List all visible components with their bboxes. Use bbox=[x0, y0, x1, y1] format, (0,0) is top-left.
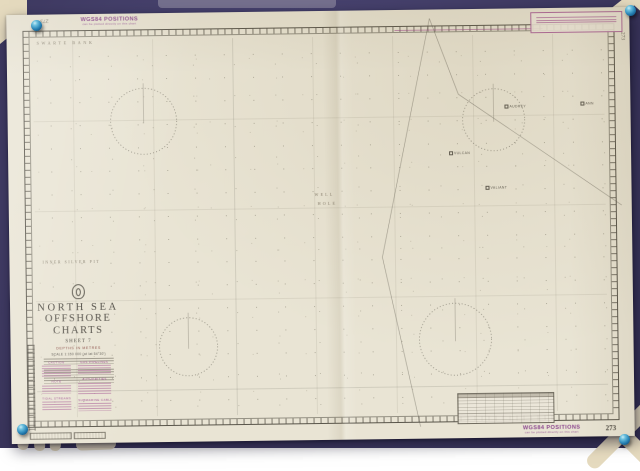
positions-table bbox=[457, 392, 554, 424]
note-heading: GAS PIPELINES bbox=[78, 361, 111, 365]
gas-field-label: ANN bbox=[580, 101, 593, 105]
caution-note-box bbox=[530, 11, 622, 33]
note-body bbox=[78, 403, 111, 411]
gas-field-label: VULCAN bbox=[449, 151, 470, 155]
note-block: GAS PIPELINES bbox=[78, 361, 111, 375]
nautical-chart-paper: WGS84 POSITIONS can be plotted directly … bbox=[6, 7, 635, 444]
note-heading: AUTHORITIES bbox=[78, 378, 111, 382]
chart-title-series: OFFSHORE CHARTS bbox=[30, 313, 126, 338]
note-body bbox=[78, 365, 111, 374]
note-block: SUBMARINE CABLES bbox=[78, 399, 111, 412]
chart-title-region: NORTH SEA bbox=[30, 302, 126, 314]
positions-table-header bbox=[458, 393, 553, 398]
hole-label-line1: WELL bbox=[315, 192, 335, 197]
compass-roses bbox=[110, 83, 528, 379]
depths-note: DEPTHS IN METRES bbox=[31, 346, 127, 351]
push-pin-bottom-left bbox=[17, 424, 28, 435]
bank-label: SWARTE BANK bbox=[37, 40, 95, 46]
note-body bbox=[42, 401, 71, 411]
note-block: TIDAL STREAMS bbox=[42, 397, 71, 412]
note-heading: CAUTION bbox=[42, 361, 71, 365]
photo-scene: WGS84 POSITIONS can be plotted directly … bbox=[0, 0, 640, 448]
pipeline-lines bbox=[379, 16, 624, 427]
note-body bbox=[42, 366, 71, 377]
note-heading: NOTE bbox=[42, 381, 71, 385]
note-heading: TIDAL STREAMS bbox=[42, 397, 71, 401]
gas-field-label: VALIANT bbox=[485, 186, 507, 190]
note-body bbox=[42, 385, 71, 393]
note-block: CAUTION bbox=[42, 361, 71, 377]
chart-number-bottom-right: 273 bbox=[606, 424, 617, 432]
push-pin-top-left bbox=[31, 20, 42, 31]
push-pin-top-right bbox=[625, 5, 636, 16]
note-text-line bbox=[536, 16, 616, 18]
wgs84-stamp-top: WGS84 POSITIONS can be plotted directly … bbox=[64, 16, 154, 26]
pit-label: INNER SILVER PIT bbox=[42, 260, 100, 265]
notes-column-right: GAS PIPELINES AUTHORITIES SUBMARINE CABL… bbox=[78, 361, 112, 416]
chart-sheet-number: SHEET 7 bbox=[30, 339, 126, 345]
compass-north-lines bbox=[143, 79, 496, 350]
chart-number-right-edge: 273 bbox=[619, 32, 625, 40]
note-block: AUTHORITIES bbox=[78, 378, 111, 395]
note-block: NOTE bbox=[42, 381, 71, 394]
admiralty-crest-icon bbox=[71, 284, 84, 299]
scale-note: SCALE 1:150 000 (at lat 54°30') bbox=[31, 351, 127, 356]
gas-field-label: AUDREY bbox=[504, 104, 526, 108]
note-text-line bbox=[536, 22, 616, 24]
print-note-box bbox=[74, 432, 106, 439]
print-note-box bbox=[30, 432, 72, 440]
hole-label-line2: HOLE bbox=[318, 201, 338, 206]
note-heading: SUBMARINE CABLES bbox=[78, 399, 111, 403]
notes-column-left: CAUTION NOTE TIDAL STREAMS bbox=[42, 361, 72, 416]
note-body bbox=[78, 383, 111, 395]
push-pin-bottom-right bbox=[619, 434, 630, 445]
fabric-band-top bbox=[158, 0, 336, 8]
note-text-line bbox=[536, 19, 616, 21]
wgs84-stamp-bottom: WGS84 POSITIONS can be plotted directly … bbox=[507, 424, 597, 434]
